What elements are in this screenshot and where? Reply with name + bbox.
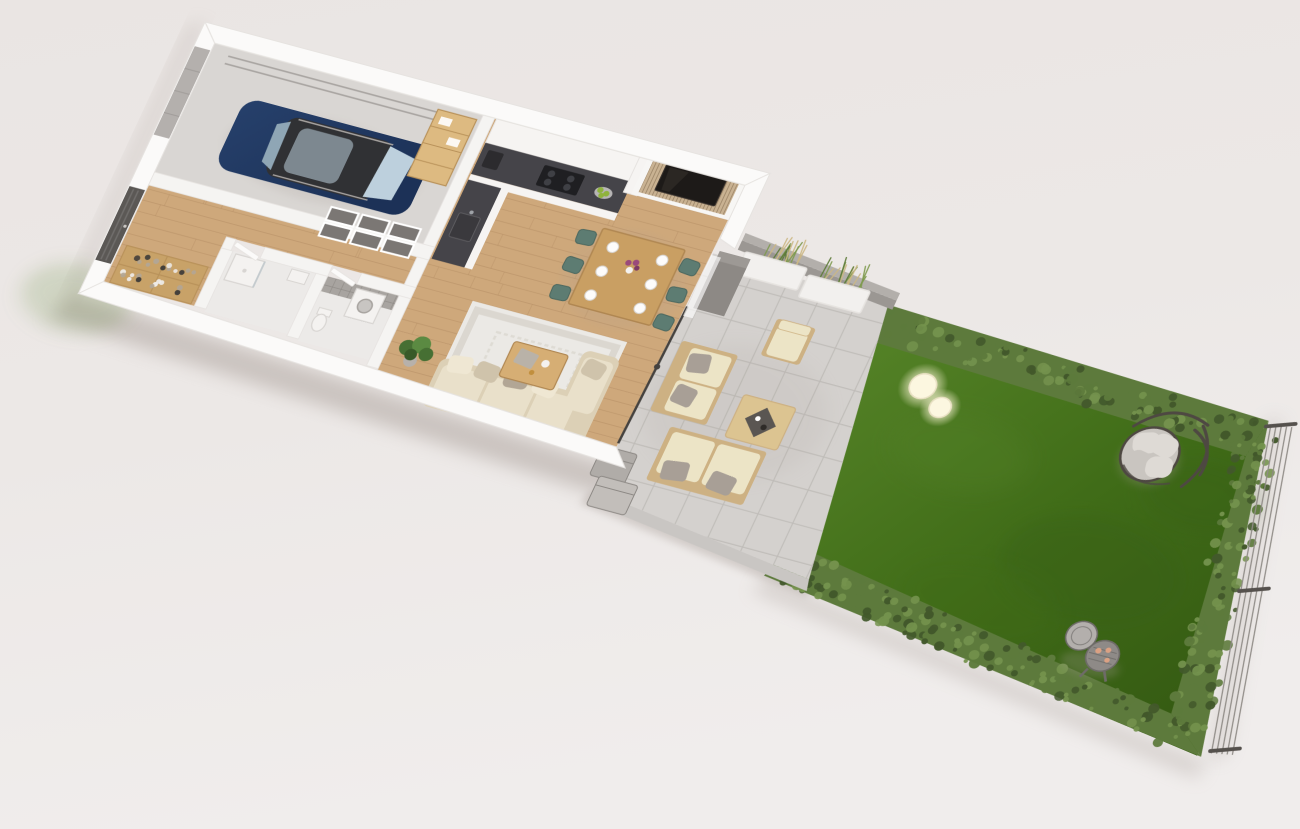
outdoor-pillow — [659, 460, 691, 482]
floor-plan-scene — [0, 0, 1300, 829]
render-canvas — [0, 0, 1300, 829]
